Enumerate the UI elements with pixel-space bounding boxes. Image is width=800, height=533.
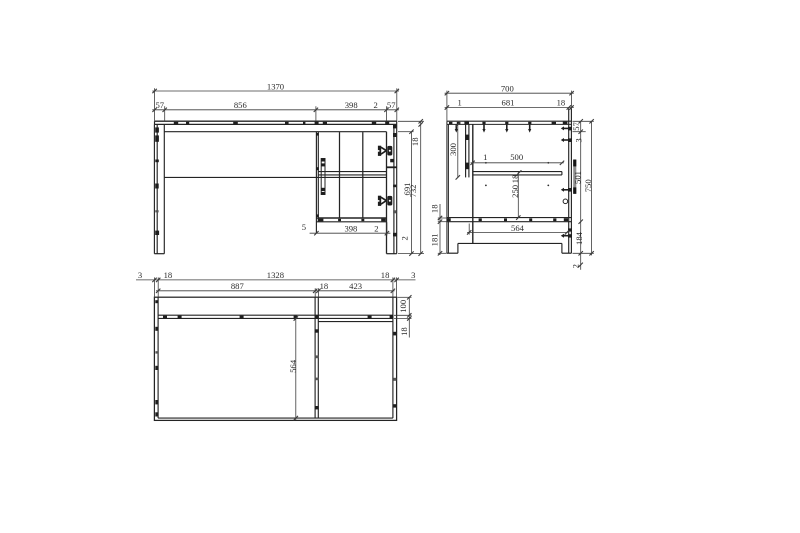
svg-text:3: 3 <box>574 138 584 142</box>
svg-text:18: 18 <box>557 97 566 107</box>
svg-text:700: 700 <box>501 83 514 93</box>
svg-text:887: 887 <box>231 281 245 291</box>
svg-text:57: 57 <box>156 100 165 110</box>
svg-text:181: 181 <box>429 233 439 246</box>
svg-text:100: 100 <box>398 300 408 313</box>
svg-text:423: 423 <box>349 281 362 291</box>
svg-text:18: 18 <box>399 327 409 336</box>
svg-text:18: 18 <box>510 175 520 184</box>
svg-text:18: 18 <box>320 281 329 291</box>
svg-text:398: 398 <box>344 223 357 233</box>
svg-text:500: 500 <box>510 152 523 162</box>
svg-text:18: 18 <box>410 138 420 147</box>
svg-text:250: 250 <box>510 185 520 198</box>
svg-text:18: 18 <box>164 270 173 280</box>
svg-text:398: 398 <box>345 100 358 110</box>
svg-text:1: 1 <box>457 97 461 107</box>
svg-text:2: 2 <box>373 100 377 110</box>
svg-text:18: 18 <box>429 205 439 214</box>
svg-text:1328: 1328 <box>267 270 284 280</box>
svg-text:2: 2 <box>400 236 410 240</box>
svg-text:856: 856 <box>234 100 248 110</box>
svg-text:18: 18 <box>381 270 390 280</box>
svg-text:2: 2 <box>374 224 378 234</box>
svg-text:1370: 1370 <box>267 81 284 91</box>
svg-text:57: 57 <box>571 122 581 131</box>
svg-text:2: 2 <box>571 264 581 268</box>
svg-text:184: 184 <box>574 231 584 245</box>
svg-text:564: 564 <box>511 223 525 233</box>
svg-text:681: 681 <box>502 97 515 107</box>
svg-text:3: 3 <box>411 270 415 280</box>
svg-text:501: 501 <box>573 171 583 184</box>
svg-text:750: 750 <box>583 179 593 192</box>
svg-text:564: 564 <box>288 359 298 373</box>
svg-text:1: 1 <box>483 152 487 162</box>
svg-text:732: 732 <box>408 185 418 198</box>
svg-text:300: 300 <box>448 143 458 156</box>
svg-text:5: 5 <box>302 222 306 232</box>
svg-text:3: 3 <box>138 270 142 280</box>
svg-text:57: 57 <box>387 100 396 110</box>
